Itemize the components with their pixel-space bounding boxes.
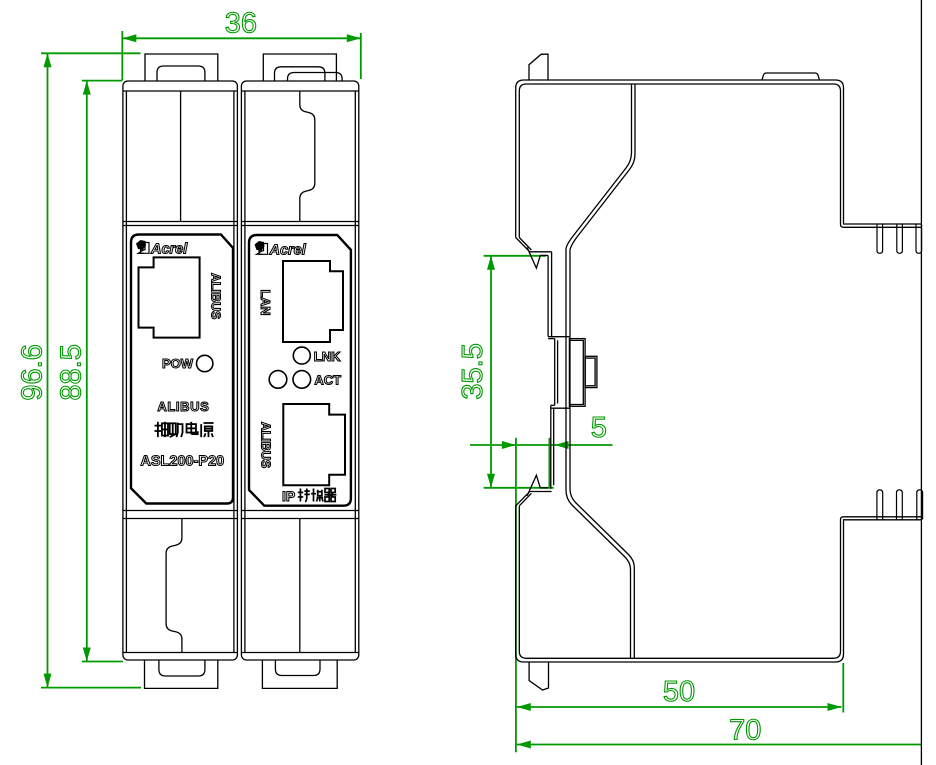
svg-text:ASL200-P20: ASL200-P20 [140,454,224,470]
svg-text:IP: IP [282,488,295,504]
svg-text:96.6: 96.6 [17,344,49,400]
svg-text:LNK: LNK [314,349,341,364]
svg-text:50: 50 [663,676,695,708]
svg-text:88.5: 88.5 [56,344,88,400]
svg-text:ALIBUS: ALIBUS [208,273,222,320]
svg-text:ALIBUS: ALIBUS [259,422,273,469]
svg-text:ALIBUS: ALIBUS [157,399,209,414]
svg-text:ACT: ACT [314,372,341,387]
svg-text:POW: POW [162,356,194,371]
svg-text:5: 5 [591,412,607,444]
svg-text:70: 70 [729,715,761,747]
svg-text:LAN: LAN [258,290,272,316]
svg-text:36: 36 [225,8,257,40]
svg-text:35.5: 35.5 [457,343,489,399]
svg-text:Acrel: Acrel [269,242,307,258]
svg-text:Acrel: Acrel [150,241,188,257]
